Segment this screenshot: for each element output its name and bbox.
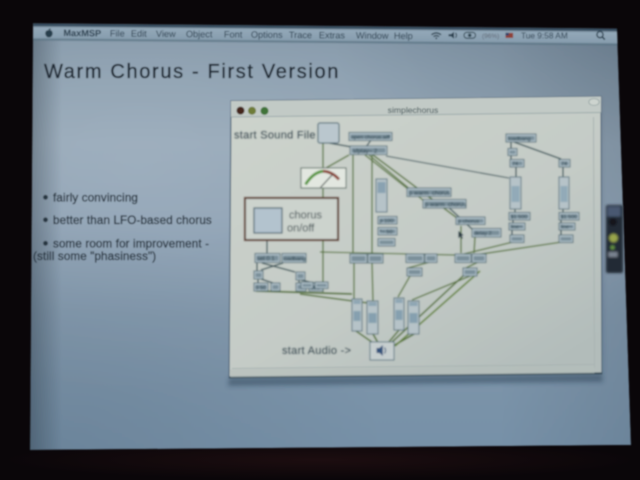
svg-text:p warm_chorus: p warm_chorus: [425, 203, 466, 209]
svg-text:$1 500: $1 500: [561, 215, 578, 221]
svg-text:better than LFO-based chorus: better than LFO-based chorus: [53, 214, 212, 227]
svg-text:Help: Help: [394, 31, 413, 41]
svg-text:chorus: chorus: [289, 210, 323, 222]
svg-text:line~: line~: [511, 225, 523, 231]
svg-text:delay 2: delay 2: [474, 231, 492, 237]
svg-text:Edit: Edit: [131, 29, 147, 39]
svg-text:Tue 9:58 AM: Tue 9:58 AM: [521, 31, 568, 41]
svg-text:loadbang: loadbang: [508, 137, 531, 143]
svg-text:simplechorus: simplechorus: [388, 105, 439, 115]
svg-text:open chorus.aiff: open chorus.aiff: [351, 135, 391, 141]
svg-text:Extras: Extras: [319, 30, 346, 40]
svg-text:(still some "phasiness"): (still some "phasiness"): [33, 250, 156, 263]
svg-text:Trace: Trace: [289, 30, 312, 40]
svg-text:74: 74: [512, 162, 518, 168]
svg-text:View: View: [156, 29, 176, 39]
svg-text:Object: Object: [186, 29, 213, 39]
svg-text:*~ 50: *~ 50: [380, 230, 393, 236]
svg-text:Options: Options: [251, 30, 283, 40]
svg-text:some room for improvement -: some room for improvement -: [53, 238, 209, 251]
svg-text:File: File: [110, 28, 125, 38]
svg-text:MaxMSP: MaxMSP: [63, 28, 101, 38]
svg-text:line~: line~: [561, 225, 573, 231]
svg-text:sfplay~ 2: sfplay~ 2: [353, 149, 378, 155]
svg-text:Window: Window: [356, 31, 389, 41]
svg-text:loadbang: loadbang: [283, 257, 306, 263]
svg-text:start Audio ->: start Audio ->: [282, 345, 351, 357]
svg-text:74: 74: [561, 162, 567, 168]
svg-text:Warm Chorus - First Version: Warm Chorus - First Version: [44, 61, 340, 83]
svg-text:Font: Font: [224, 29, 243, 39]
svg-text:$1 500: $1 500: [511, 215, 528, 221]
svg-text:p warm_chorus: p warm_chorus: [409, 191, 450, 197]
svg-text:p chorus: p chorus: [458, 219, 479, 225]
svg-text:on/off: on/off: [287, 223, 315, 235]
svg-text:sel 0 1: sel 0 1: [257, 257, 275, 263]
svg-text:start Sound File: start Sound File: [234, 130, 316, 142]
svg-text:0 50: 0 50: [256, 286, 267, 292]
svg-text:fairly convincing: fairly convincing: [53, 192, 138, 205]
svg-text:p 100: p 100: [380, 219, 394, 225]
svg-text:(96%): (96%): [482, 33, 499, 40]
